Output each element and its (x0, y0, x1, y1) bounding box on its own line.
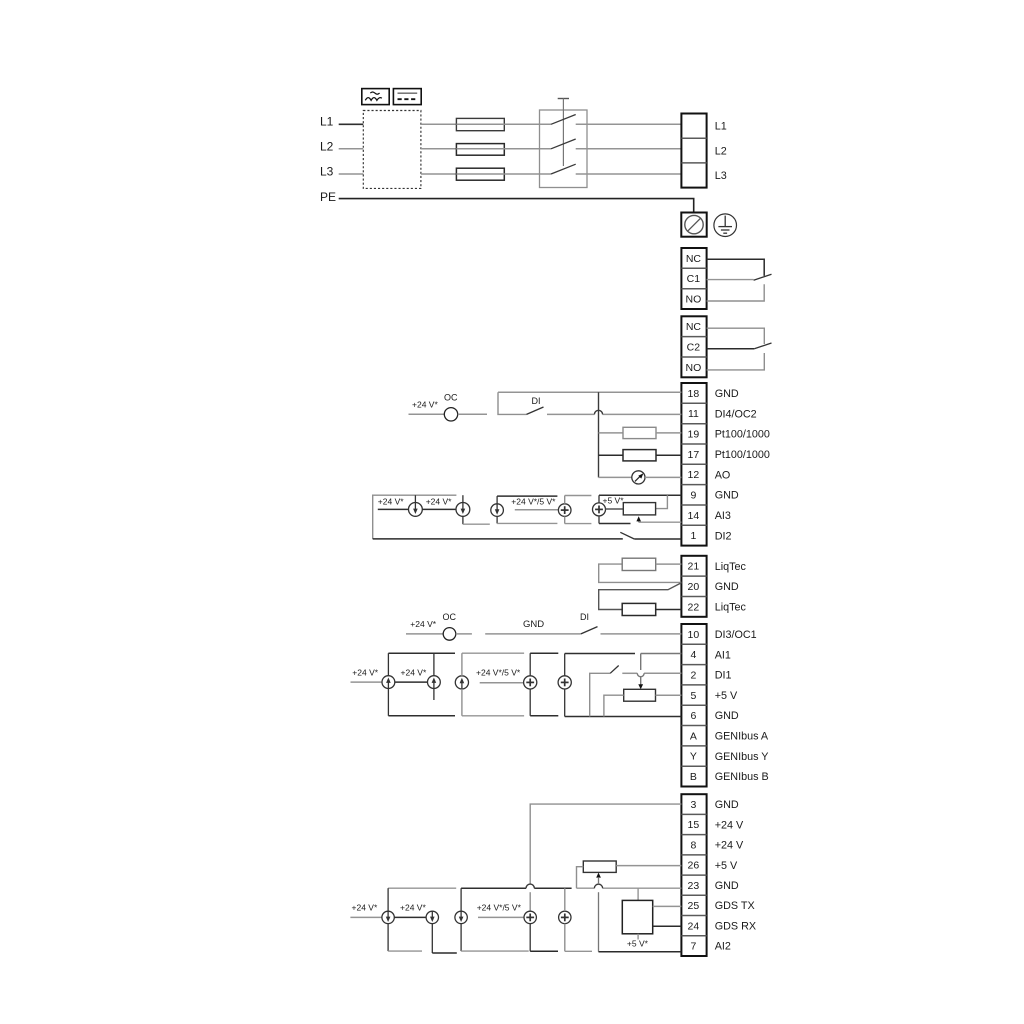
svg-text:24: 24 (688, 920, 700, 932)
svg-text:21: 21 (688, 561, 700, 573)
svg-text:+5 V*: +5 V* (627, 939, 649, 949)
svg-text:11: 11 (688, 408, 699, 420)
svg-text:22: 22 (688, 601, 700, 613)
svg-text:15: 15 (688, 819, 700, 831)
svg-text:+24 V*: +24 V* (400, 903, 426, 913)
svg-text:GENIbus Y: GENIbus Y (715, 751, 769, 763)
svg-text:10: 10 (688, 629, 700, 641)
svg-text:+24 V*: +24 V* (401, 667, 427, 677)
svg-text:+24 V: +24 V (715, 819, 744, 831)
svg-text:B: B (690, 771, 697, 783)
svg-text:NO: NO (686, 294, 702, 306)
svg-text:NC: NC (686, 321, 702, 333)
svg-text:GDS RX: GDS RX (715, 920, 756, 932)
svg-text:DI4/OC2: DI4/OC2 (715, 408, 757, 420)
svg-text:2: 2 (690, 670, 696, 682)
svg-text:+24 V*/5 V*: +24 V*/5 V* (477, 903, 522, 913)
svg-text:7: 7 (690, 941, 696, 953)
svg-text:GND: GND (715, 581, 739, 593)
svg-text:GND: GND (715, 880, 739, 892)
svg-text:Pt100/1000: Pt100/1000 (715, 429, 770, 441)
svg-text:LiqTec: LiqTec (715, 601, 747, 613)
svg-text:+24 V*: +24 V* (410, 619, 436, 629)
svg-text:23: 23 (688, 880, 700, 892)
svg-text:OC: OC (444, 392, 458, 402)
svg-text:20: 20 (688, 581, 700, 593)
svg-text:+24 V*/5 V*: +24 V*/5 V* (511, 496, 556, 506)
svg-text:4: 4 (690, 649, 696, 661)
svg-text:1: 1 (690, 530, 696, 542)
svg-text:+5 V: +5 V (715, 860, 738, 872)
svg-text:OC: OC (443, 612, 457, 622)
svg-text:+24 V*: +24 V* (352, 667, 378, 677)
svg-text:GND: GND (715, 490, 739, 502)
svg-text:L3: L3 (320, 165, 334, 179)
svg-text:AI1: AI1 (715, 649, 731, 661)
svg-text:GND: GND (715, 388, 739, 400)
svg-text:NC: NC (686, 253, 702, 265)
svg-text:12: 12 (688, 469, 700, 481)
svg-text:3: 3 (690, 799, 696, 811)
svg-text:DI2: DI2 (715, 530, 732, 542)
svg-text:NO: NO (686, 362, 702, 374)
svg-text:18: 18 (688, 388, 700, 400)
svg-text:Pt100/1000: Pt100/1000 (715, 449, 770, 461)
svg-text:19: 19 (688, 429, 700, 441)
svg-text:+24 V*: +24 V* (378, 496, 404, 506)
svg-text:25: 25 (688, 900, 700, 912)
svg-text:6: 6 (690, 710, 696, 722)
svg-text:5: 5 (690, 690, 696, 702)
svg-text:GDS TX: GDS TX (715, 900, 755, 912)
svg-text:14: 14 (688, 510, 700, 522)
svg-text:17: 17 (688, 449, 700, 461)
svg-text:GND: GND (523, 619, 544, 630)
svg-text:+24 V*: +24 V* (426, 496, 452, 506)
svg-text:L3: L3 (715, 170, 727, 182)
svg-text:DI: DI (532, 396, 541, 406)
svg-text:DI3/OC1: DI3/OC1 (715, 629, 757, 641)
svg-text:+24 V*/5 V*: +24 V*/5 V* (476, 667, 521, 677)
svg-text:DI1: DI1 (715, 670, 732, 682)
svg-text:AO: AO (715, 469, 731, 481)
svg-text:GENIbus A: GENIbus A (715, 731, 769, 743)
svg-text:8: 8 (690, 840, 696, 852)
svg-text:9: 9 (690, 490, 696, 502)
svg-text:L1: L1 (320, 115, 334, 129)
svg-text:C2: C2 (687, 342, 701, 354)
svg-text:A: A (690, 730, 697, 742)
svg-text:GENIbus B: GENIbus B (715, 771, 769, 783)
svg-text:+5 V: +5 V (715, 690, 738, 702)
svg-text:+24 V*: +24 V* (412, 399, 438, 409)
svg-text:+5 V*: +5 V* (603, 496, 625, 506)
svg-text:GND: GND (715, 799, 739, 811)
svg-text:C1: C1 (687, 273, 701, 285)
svg-text:L2: L2 (715, 145, 727, 157)
svg-text:PE: PE (320, 190, 336, 204)
svg-text:L2: L2 (320, 140, 334, 154)
svg-text:+24 V: +24 V (715, 840, 744, 852)
svg-text:GND: GND (715, 710, 739, 722)
svg-text:Y: Y (690, 751, 697, 763)
svg-text:DI: DI (580, 612, 589, 622)
svg-text:L1: L1 (715, 121, 727, 133)
svg-text:+24 V*: +24 V* (352, 903, 378, 913)
svg-text:LiqTec: LiqTec (715, 561, 747, 573)
svg-text:AI2: AI2 (715, 941, 731, 953)
svg-text:26: 26 (688, 860, 700, 872)
svg-text:AI3: AI3 (715, 510, 731, 522)
